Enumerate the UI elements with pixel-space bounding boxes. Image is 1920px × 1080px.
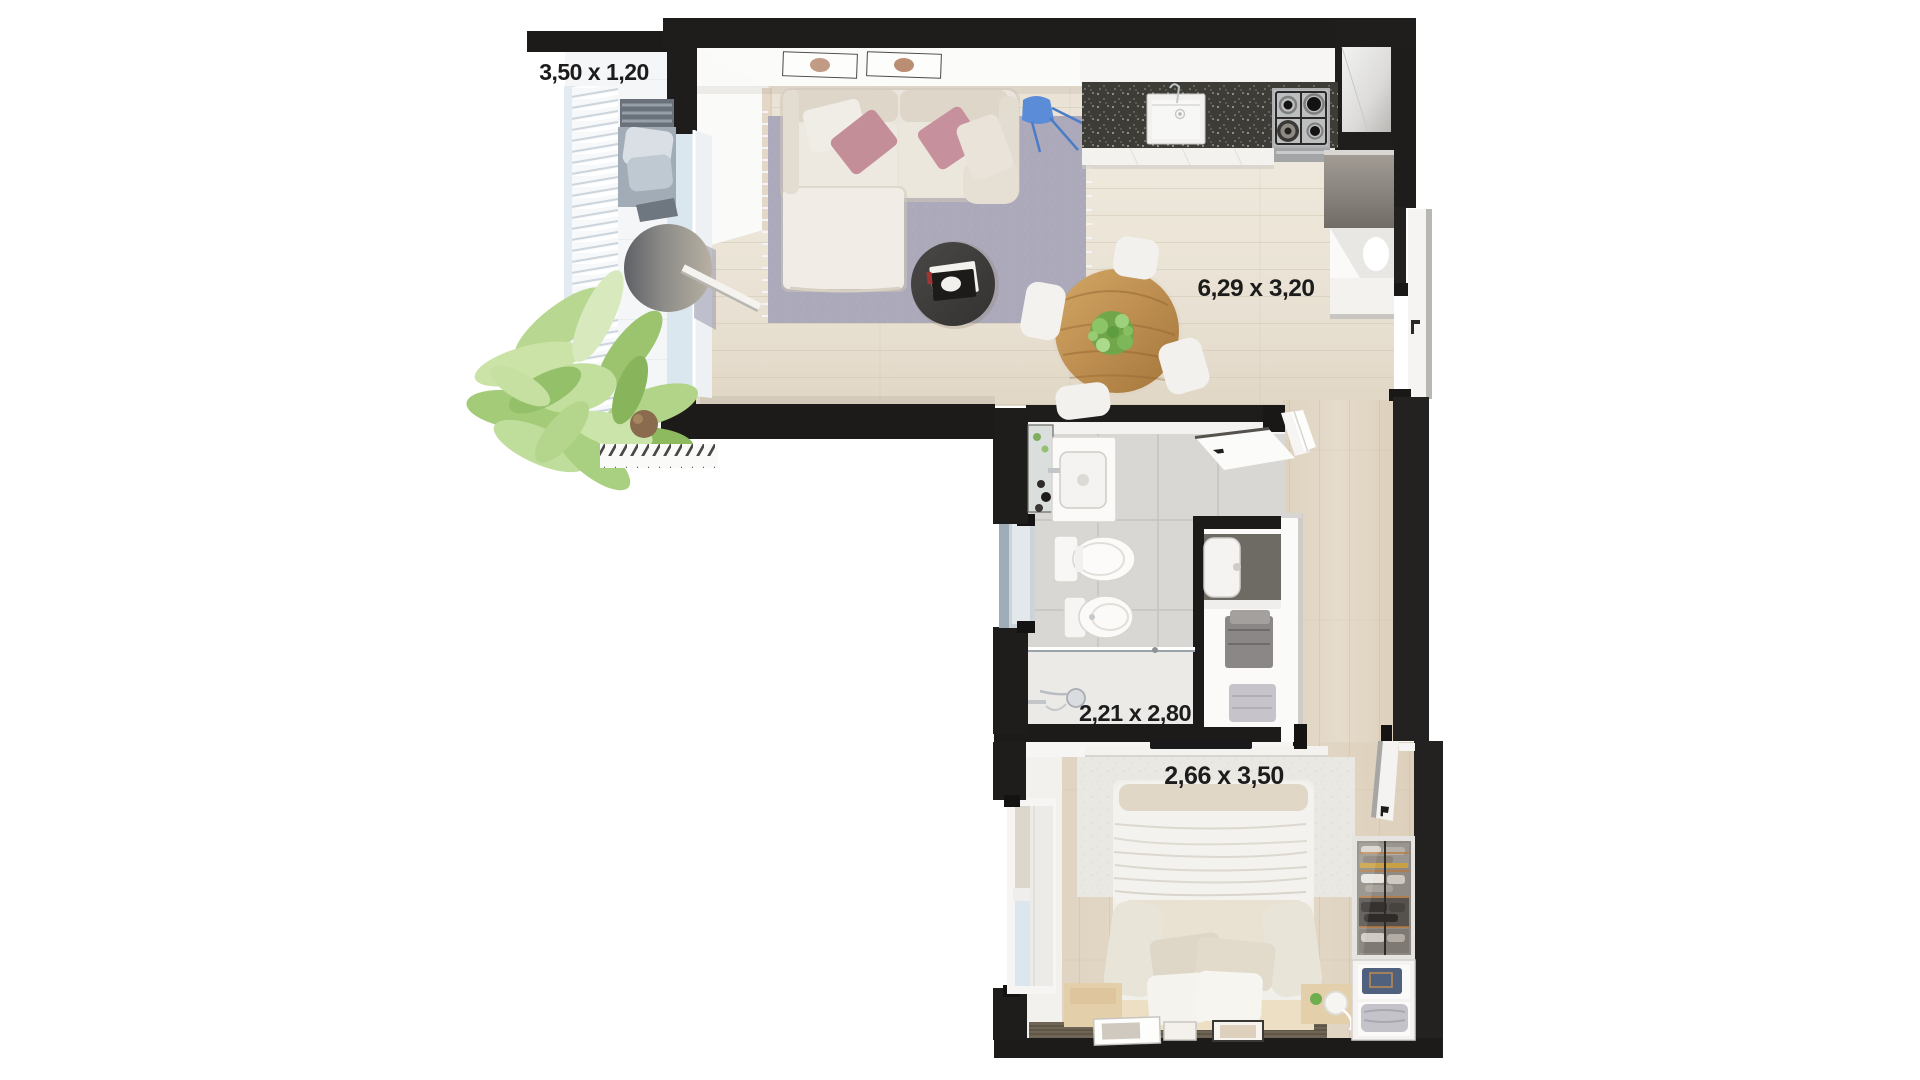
- svg-text:6,29 x 3,20: 6,29 x 3,20: [1197, 275, 1314, 302]
- svg-text:3,50 x 1,20: 3,50 x 1,20: [539, 59, 649, 85]
- svg-text:2,66 x 3,50: 2,66 x 3,50: [1164, 762, 1284, 790]
- svg-text:2,21 x 2,80: 2,21 x 2,80: [1079, 700, 1192, 726]
